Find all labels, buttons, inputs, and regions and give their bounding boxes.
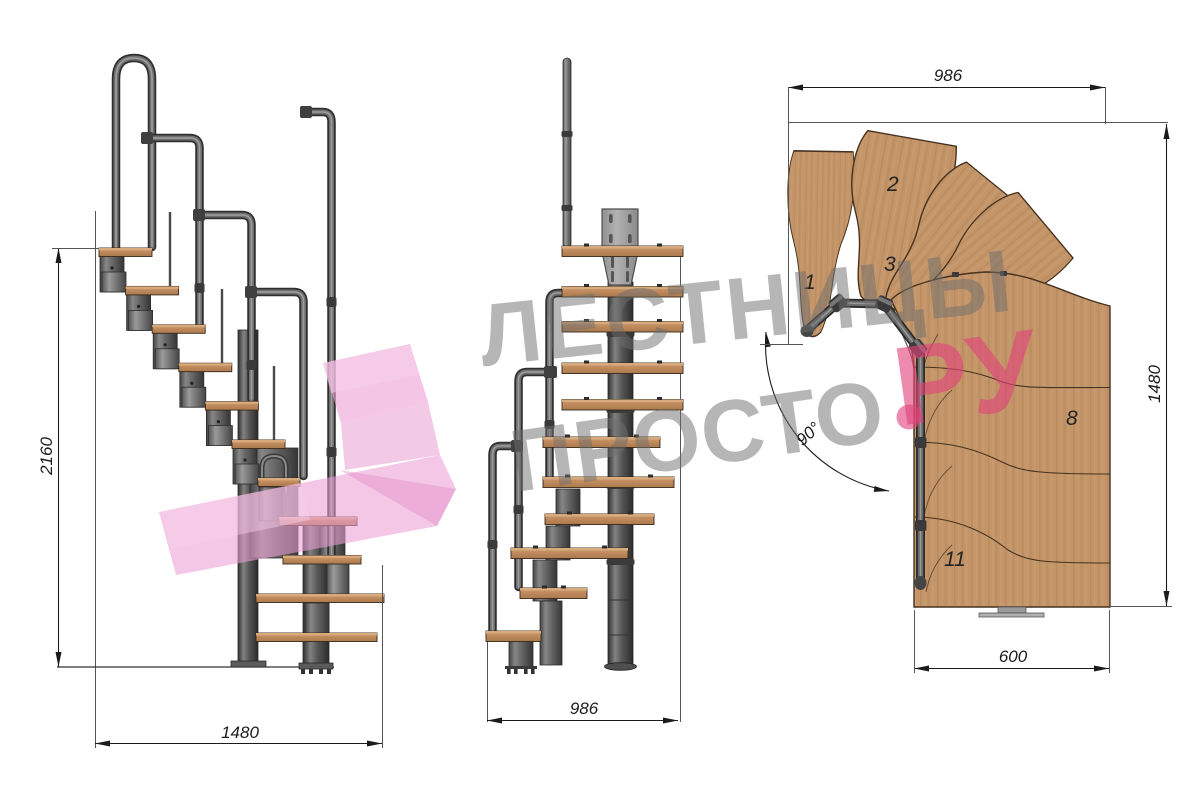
svg-text:2: 2: [886, 173, 899, 196]
svg-text:2160: 2160: [37, 437, 56, 476]
svg-text:600: 600: [999, 647, 1028, 666]
svg-text:8: 8: [1066, 407, 1078, 430]
svg-text:986: 986: [934, 66, 963, 85]
svg-text:1480: 1480: [221, 723, 259, 742]
svg-text:986: 986: [570, 699, 599, 718]
svg-text:11: 11: [944, 548, 966, 571]
svg-text:1480: 1480: [1145, 365, 1164, 403]
